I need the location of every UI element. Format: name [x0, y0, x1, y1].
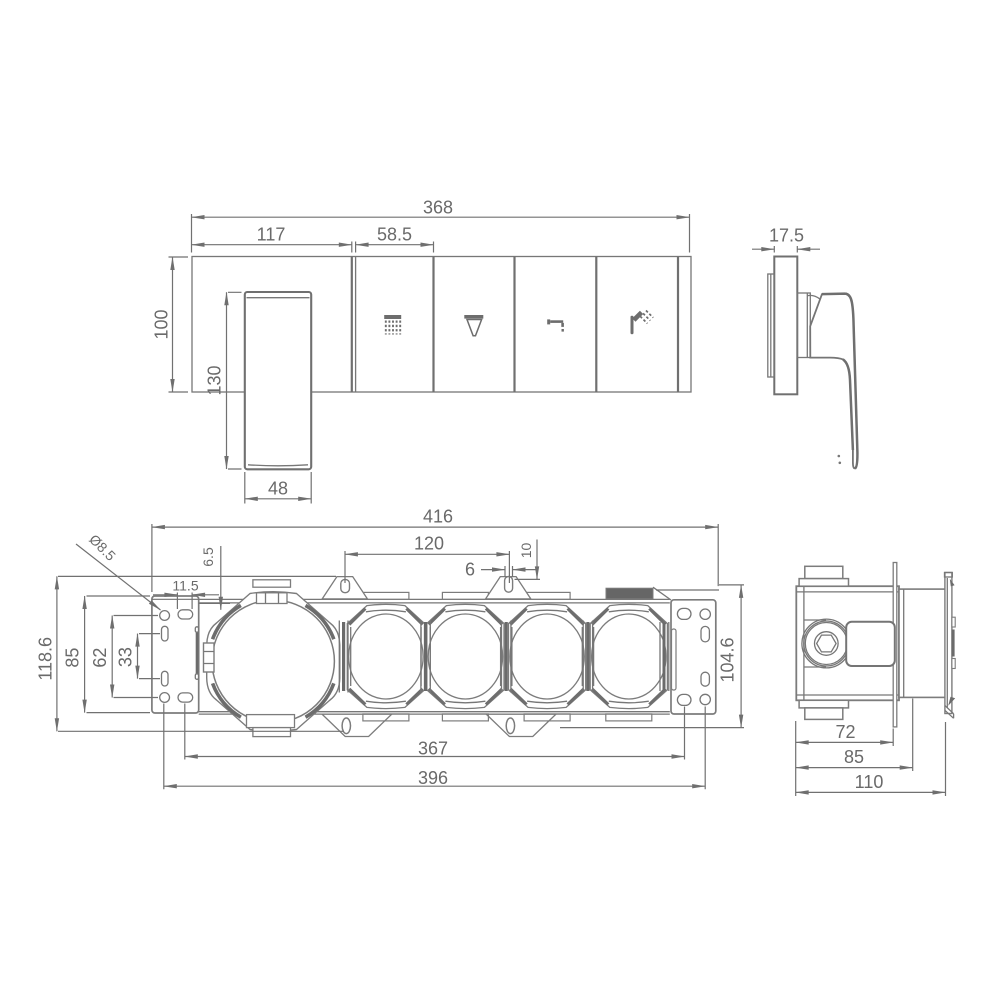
svg-text:58.5: 58.5 — [377, 225, 412, 245]
svg-text:100: 100 — [152, 309, 172, 339]
svg-text:110: 110 — [855, 772, 884, 792]
svg-text:85: 85 — [63, 648, 83, 668]
svg-text:62: 62 — [90, 648, 110, 668]
svg-text:72: 72 — [835, 722, 855, 742]
svg-text:416: 416 — [423, 507, 453, 527]
svg-text:368: 368 — [423, 198, 453, 218]
svg-text:48: 48 — [268, 479, 288, 499]
svg-text:6.5: 6.5 — [200, 547, 216, 567]
svg-text:118.6: 118.6 — [36, 637, 56, 681]
svg-text:396: 396 — [418, 768, 448, 788]
svg-text:11.5: 11.5 — [172, 578, 198, 594]
svg-text:10: 10 — [518, 543, 534, 559]
svg-text:85: 85 — [844, 747, 864, 767]
svg-text:120: 120 — [414, 534, 444, 554]
svg-text:104.6: 104.6 — [718, 637, 738, 682]
svg-text:117: 117 — [257, 225, 286, 245]
svg-text:6: 6 — [465, 560, 475, 580]
svg-text:Ø8.5: Ø8.5 — [86, 531, 119, 564]
svg-text:33: 33 — [116, 647, 136, 667]
svg-text:130: 130 — [205, 365, 225, 395]
svg-text:17.5: 17.5 — [769, 226, 804, 246]
svg-text:367: 367 — [418, 739, 448, 759]
